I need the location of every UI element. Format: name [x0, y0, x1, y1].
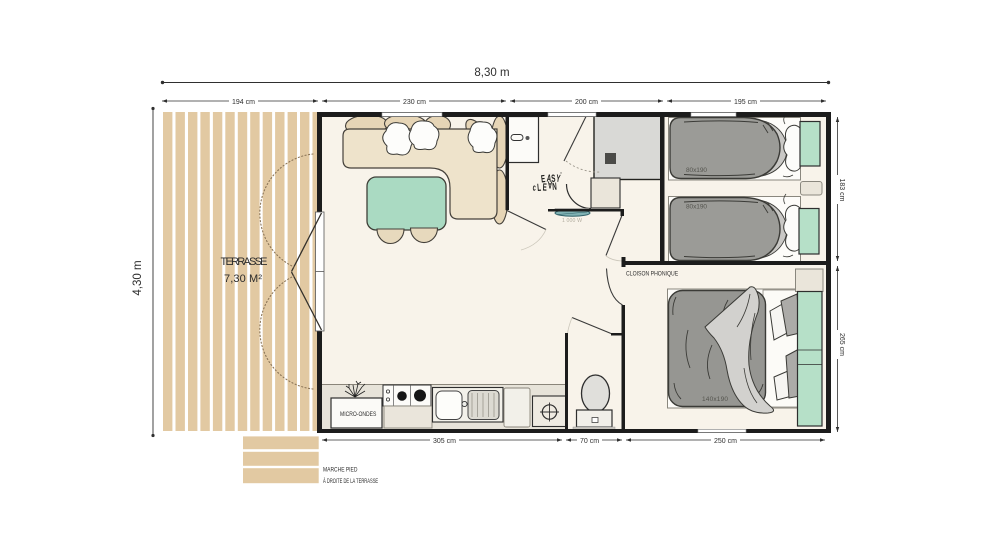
svg-text:250 cm: 250 cm: [714, 438, 737, 445]
svg-text:TERRASSE: TERRASSE: [221, 256, 268, 268]
svg-text:230 cm: 230 cm: [403, 99, 426, 106]
svg-text:305 cm: 305 cm: [433, 438, 456, 445]
svg-text:7,30 M²: 7,30 M²: [224, 273, 262, 285]
svg-text:E: E: [542, 181, 547, 193]
svg-text:80x190: 80x190: [686, 167, 707, 174]
svg-text:200 cm: 200 cm: [575, 99, 598, 106]
svg-text:4,30 m: 4,30 m: [132, 260, 144, 295]
svg-text:194 cm: 194 cm: [232, 99, 255, 106]
svg-text:195 cm: 195 cm: [734, 99, 757, 106]
svg-text:1 000 W: 1 000 W: [562, 218, 582, 224]
svg-text:CLOISON PHONIQUE: CLOISON PHONIQUE: [626, 271, 678, 278]
svg-text:MARCHE PIED: MARCHE PIED: [323, 467, 357, 474]
svg-text:70 cm: 70 cm: [580, 438, 599, 445]
svg-text:MICRO-ONDES: MICRO-ONDES: [340, 412, 377, 418]
svg-text:183 cm: 183 cm: [838, 179, 845, 202]
svg-text:8,30 m: 8,30 m: [474, 67, 509, 79]
svg-text:À DROITE DE LA TERRASSE: À DROITE DE LA TERRASSE: [323, 477, 378, 485]
svg-text:265 cm: 265 cm: [838, 333, 845, 356]
svg-text:N: N: [552, 180, 557, 192]
svg-text:140x190: 140x190: [702, 396, 728, 403]
svg-text:80x190: 80x190: [686, 204, 707, 211]
